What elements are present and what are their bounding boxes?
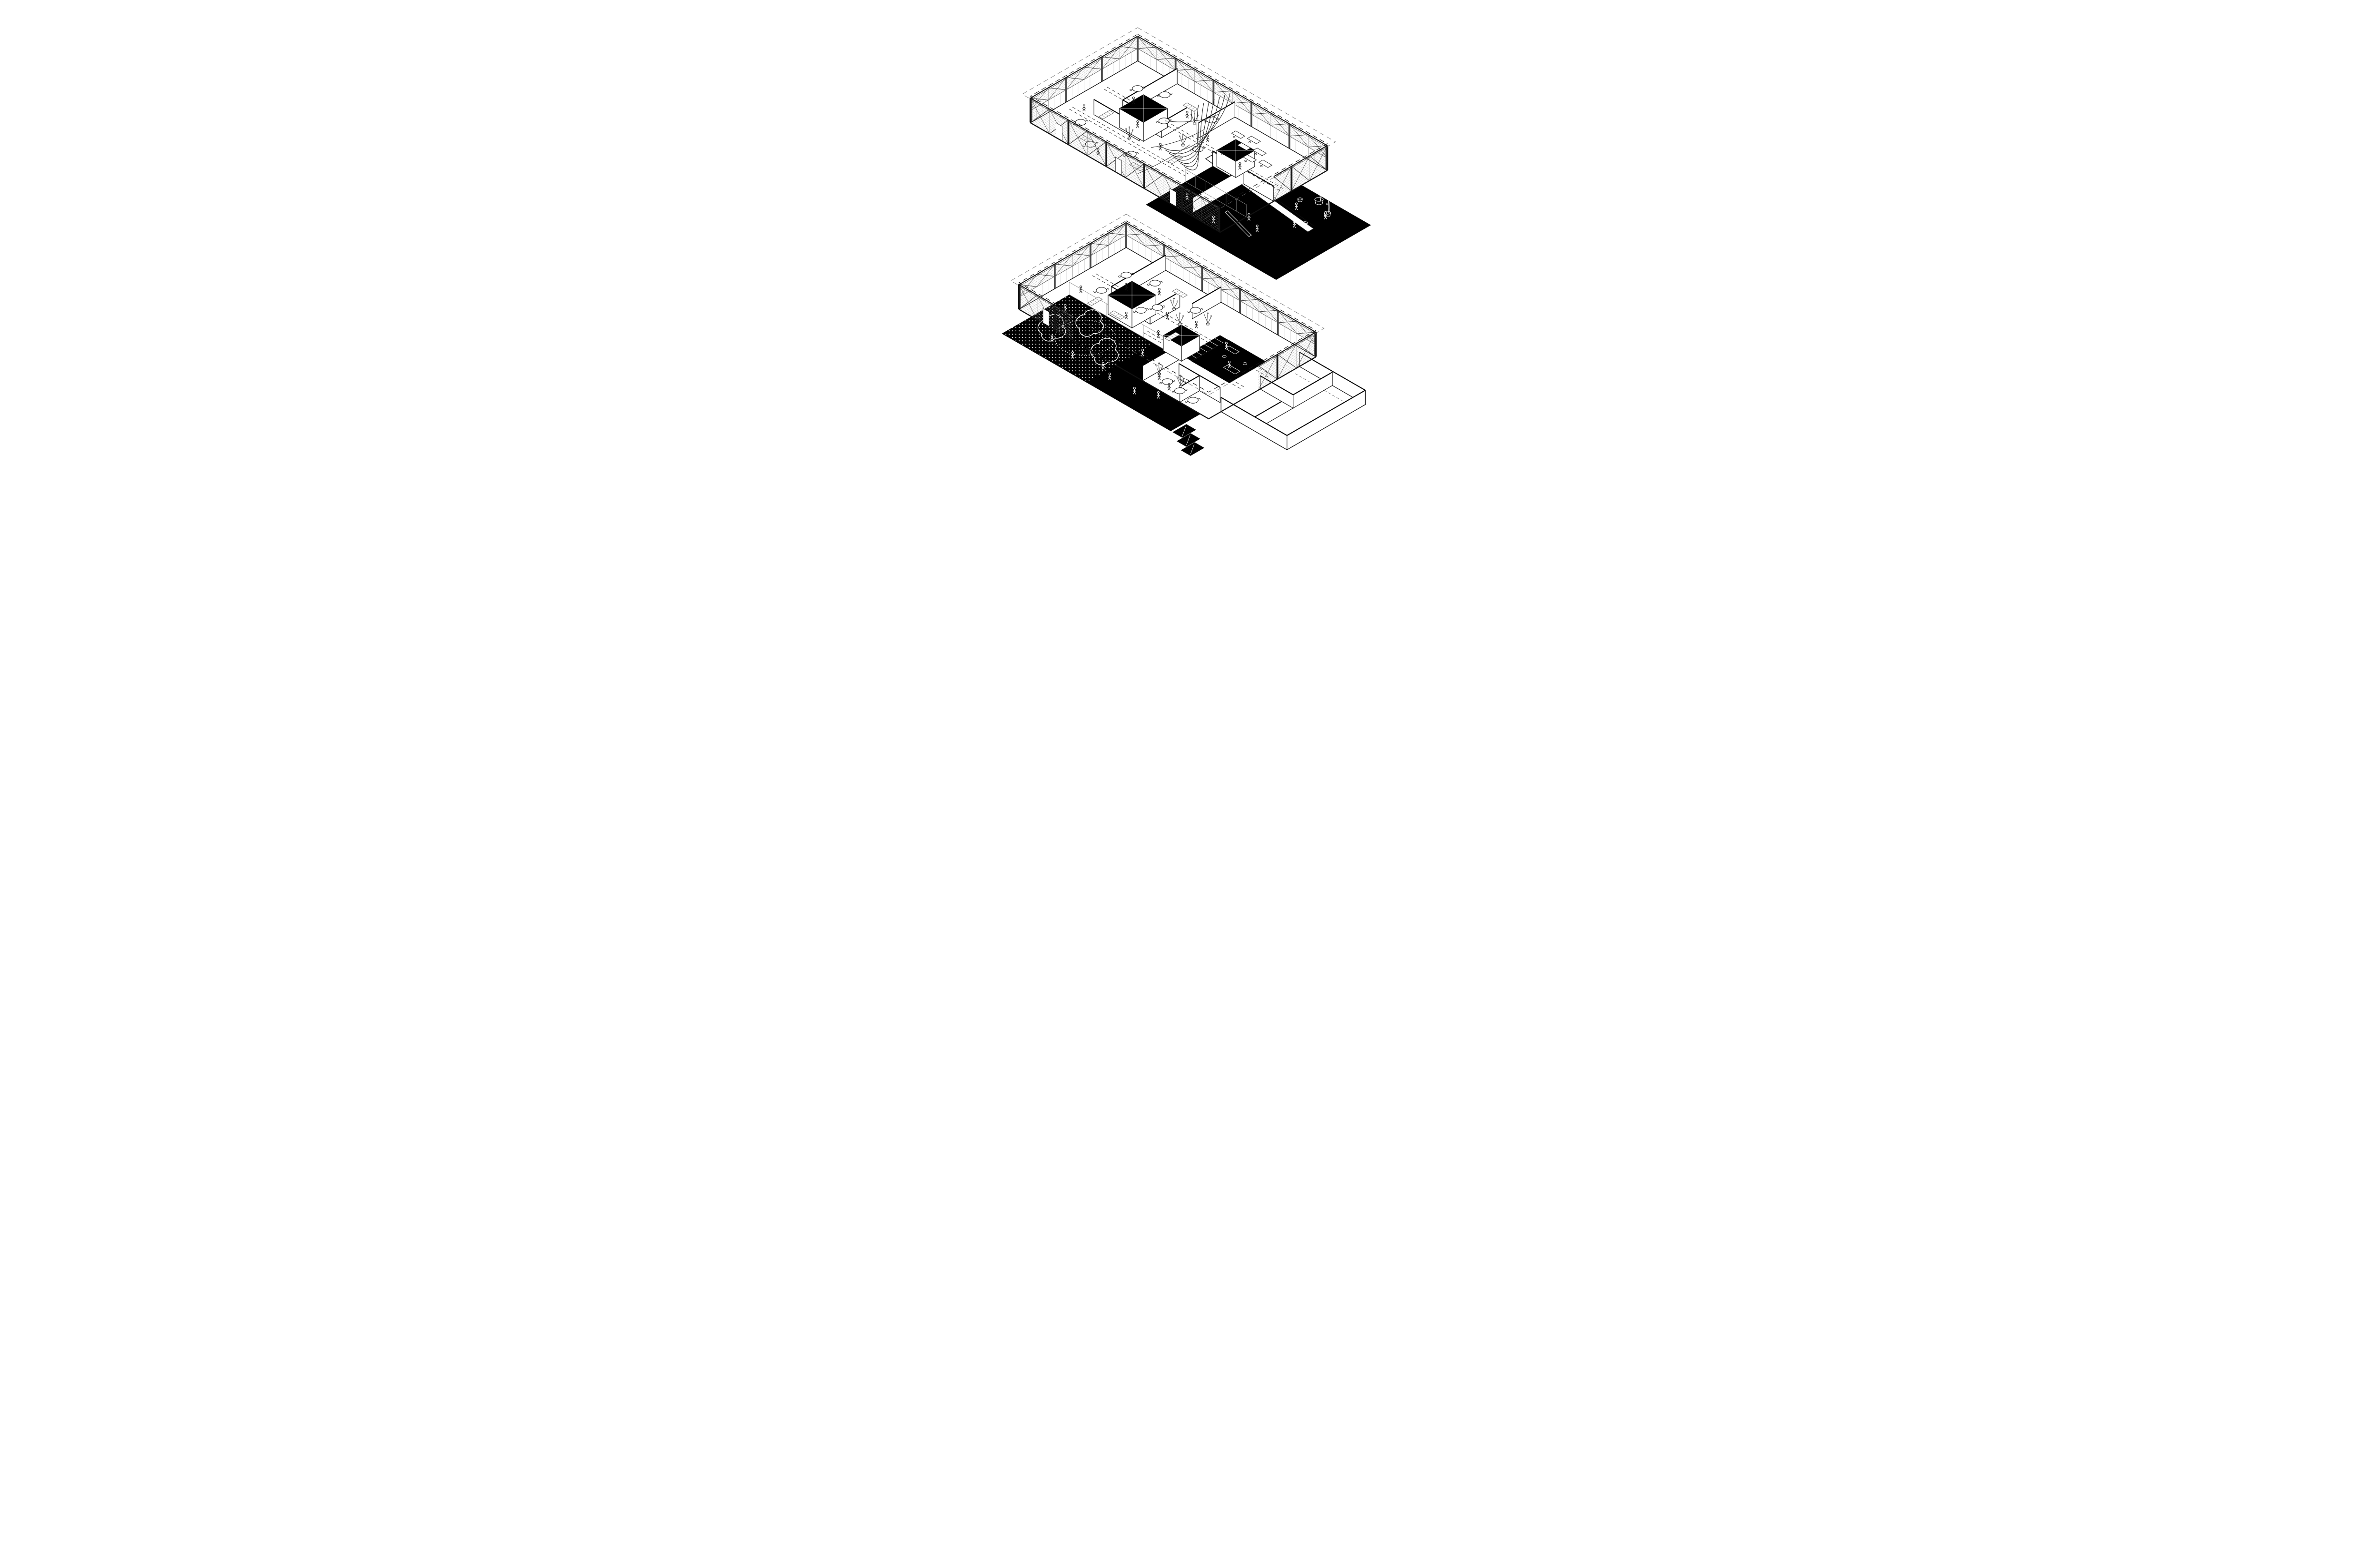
axonometric-drawings: [822, 0, 1559, 468]
upper-floor-axonometric: [1022, 28, 1371, 280]
drawing-canvas: [822, 0, 1559, 468]
entry-steps: [1172, 424, 1205, 456]
